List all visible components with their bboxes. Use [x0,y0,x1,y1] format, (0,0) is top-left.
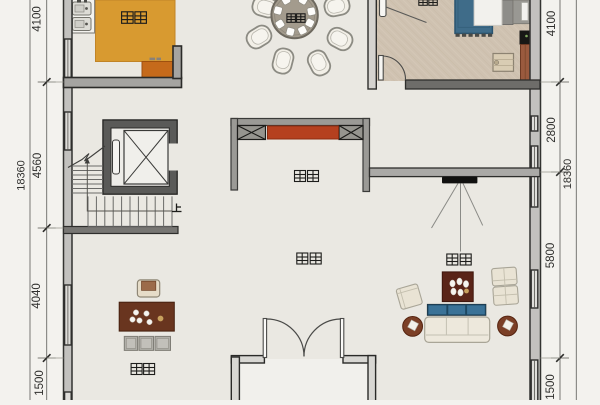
svg-text:4100: 4100 [546,11,558,37]
svg-text:18360: 18360 [16,160,28,191]
svg-text:18360: 18360 [562,159,574,190]
svg-text:4100: 4100 [32,6,44,32]
svg-text:5800: 5800 [545,243,557,269]
svg-text:4040: 4040 [31,283,43,309]
svg-text:1500: 1500 [34,370,46,396]
svg-text:4560: 4560 [32,153,44,179]
svg-text:2800: 2800 [546,117,558,143]
svg-text:1500: 1500 [545,374,557,400]
